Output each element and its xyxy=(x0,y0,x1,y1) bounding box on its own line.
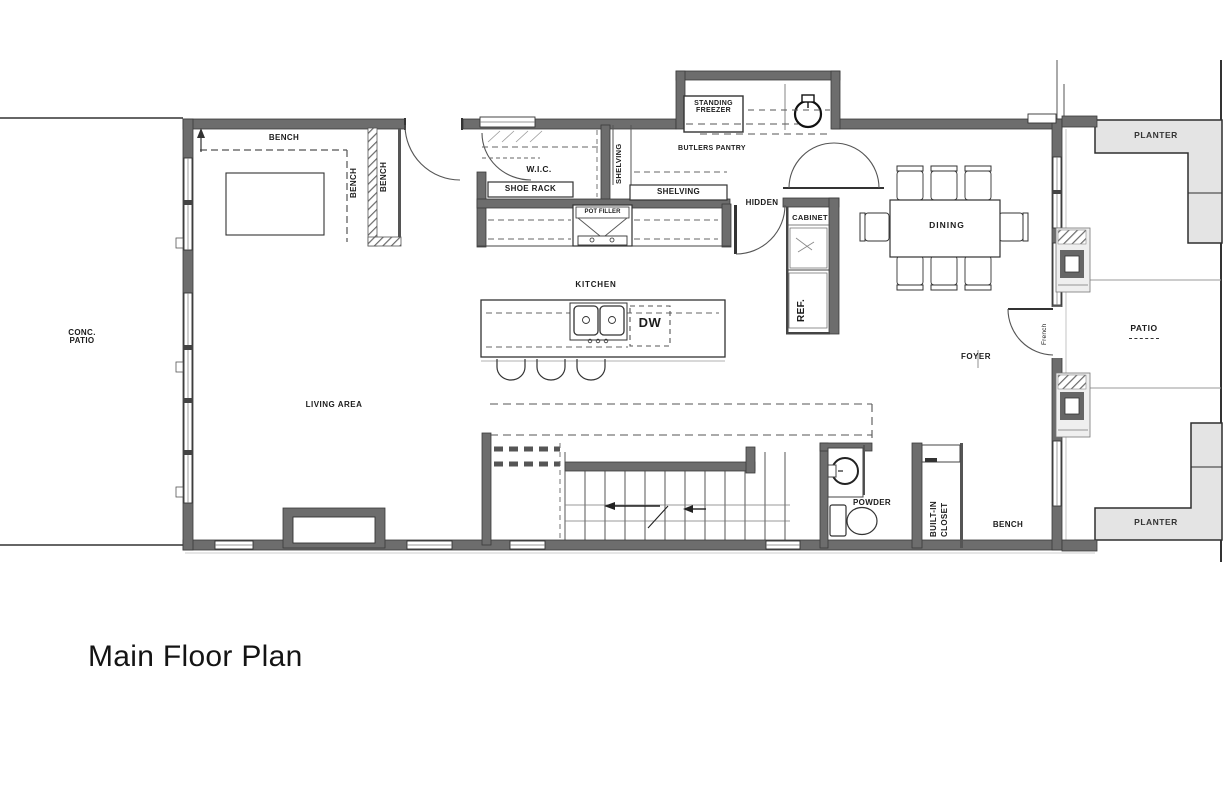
fireplace-inner xyxy=(293,517,375,543)
stairs xyxy=(490,404,872,540)
patio-dimension-tick xyxy=(1129,338,1159,339)
floor-plan-canvas: BENCH BENCH BENCH W.I.C. SHOE RACK SHELV… xyxy=(0,0,1224,792)
cabinet-fridge xyxy=(787,225,829,328)
label-ref: REF. xyxy=(797,299,808,322)
label-bench-bottom: BENCH xyxy=(984,521,1032,529)
label-powder: POWDER xyxy=(848,499,896,507)
label-foyer: FOYER xyxy=(954,353,998,361)
label-patio: PATIO xyxy=(1118,324,1170,333)
label-standing-freezer-line1: STANDING xyxy=(684,100,743,107)
label-standing-freezer-line2: FREEZER xyxy=(684,107,743,114)
label-built-in-closet-line1: BUILT-IN xyxy=(929,501,940,537)
label-wic: W.I.C. xyxy=(524,165,554,174)
label-conc-patio-line2: PATIO xyxy=(58,337,106,345)
label-pot-filler: POT FILLER xyxy=(577,209,628,215)
label-standing-freezer: STANDING FREEZER xyxy=(684,100,743,115)
closet-fixtures xyxy=(922,445,960,462)
kitchen-fixtures xyxy=(477,205,731,380)
label-kitchen: KITCHEN xyxy=(566,281,626,289)
label-shoe-rack: SHOE RACK xyxy=(488,185,573,193)
label-shelving-horizontal: SHELVING xyxy=(630,188,727,196)
label-bench-top: BENCH xyxy=(262,134,306,142)
label-built-in-closet: BUILT-IN CLOSET xyxy=(929,501,950,537)
powder-fixtures xyxy=(828,448,877,536)
label-planter-top: PLANTER xyxy=(1126,131,1186,140)
label-planter-bottom: PLANTER xyxy=(1126,518,1186,527)
label-built-in-closet-line2: CLOSET xyxy=(940,501,951,537)
label-french: French xyxy=(1042,324,1049,345)
label-conc-patio: CONC. PATIO xyxy=(58,329,106,346)
label-cabinet: CABINET xyxy=(788,214,832,222)
label-bench-vertical-2: BENCH xyxy=(380,162,388,192)
label-living-area: LIVING AREA xyxy=(298,401,370,409)
label-dw: DW xyxy=(633,316,667,330)
label-dining: DINING xyxy=(917,221,977,230)
label-bench-vertical-1: BENCH xyxy=(350,168,358,198)
page-title: Main Floor Plan xyxy=(88,640,303,674)
mudroom-living xyxy=(197,128,347,242)
label-hidden: HIDDEN xyxy=(740,199,784,207)
label-shelving-vertical: SHELVING xyxy=(615,143,623,184)
label-butlers-pantry: BUTLERS PANTRY xyxy=(672,145,752,152)
